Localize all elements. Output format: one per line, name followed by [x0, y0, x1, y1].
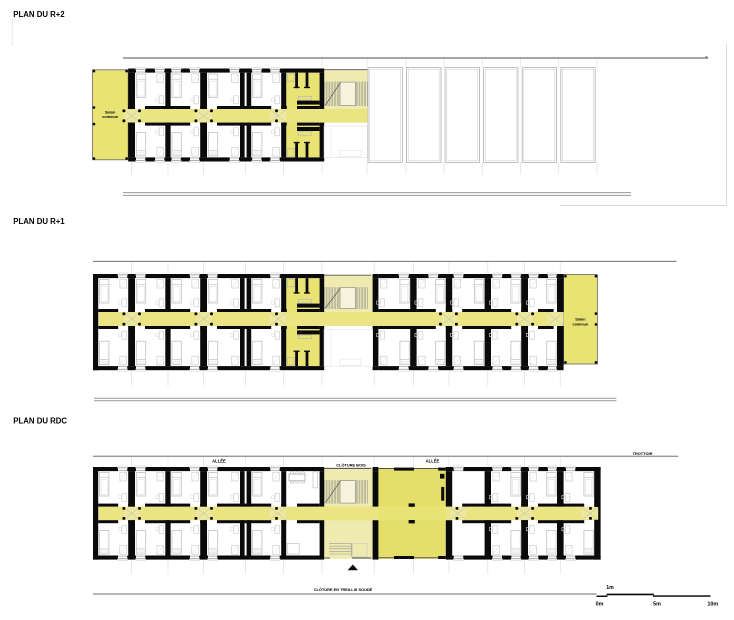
svg-text:0m: 0m [596, 602, 604, 608]
svg-text:commun: commun [572, 322, 589, 326]
svg-text:ALLÉE: ALLÉE [212, 459, 226, 464]
svg-text:CLÔTURE EN TREILLIS SOUDÉ: CLÔTURE EN TREILLIS SOUDÉ [314, 587, 373, 592]
svg-text:PLAN DU R+1: PLAN DU R+1 [13, 217, 65, 226]
svg-text:Salon: Salon [575, 318, 586, 322]
svg-text:commun: commun [102, 115, 119, 119]
svg-text:CLÔTURE BOIS: CLÔTURE BOIS [336, 462, 366, 467]
svg-text:TROTTOIR: TROTTOIR [633, 451, 653, 456]
svg-text:1m: 1m [606, 585, 614, 591]
svg-text:ALLÉE: ALLÉE [426, 459, 440, 464]
svg-text:PLAN DU R+2: PLAN DU R+2 [13, 10, 65, 19]
svg-text:Salon: Salon [105, 110, 116, 114]
svg-text:PLAN DU RDC: PLAN DU RDC [13, 416, 67, 425]
svg-text:10m: 10m [707, 602, 718, 608]
svg-text:5m: 5m [653, 602, 661, 608]
